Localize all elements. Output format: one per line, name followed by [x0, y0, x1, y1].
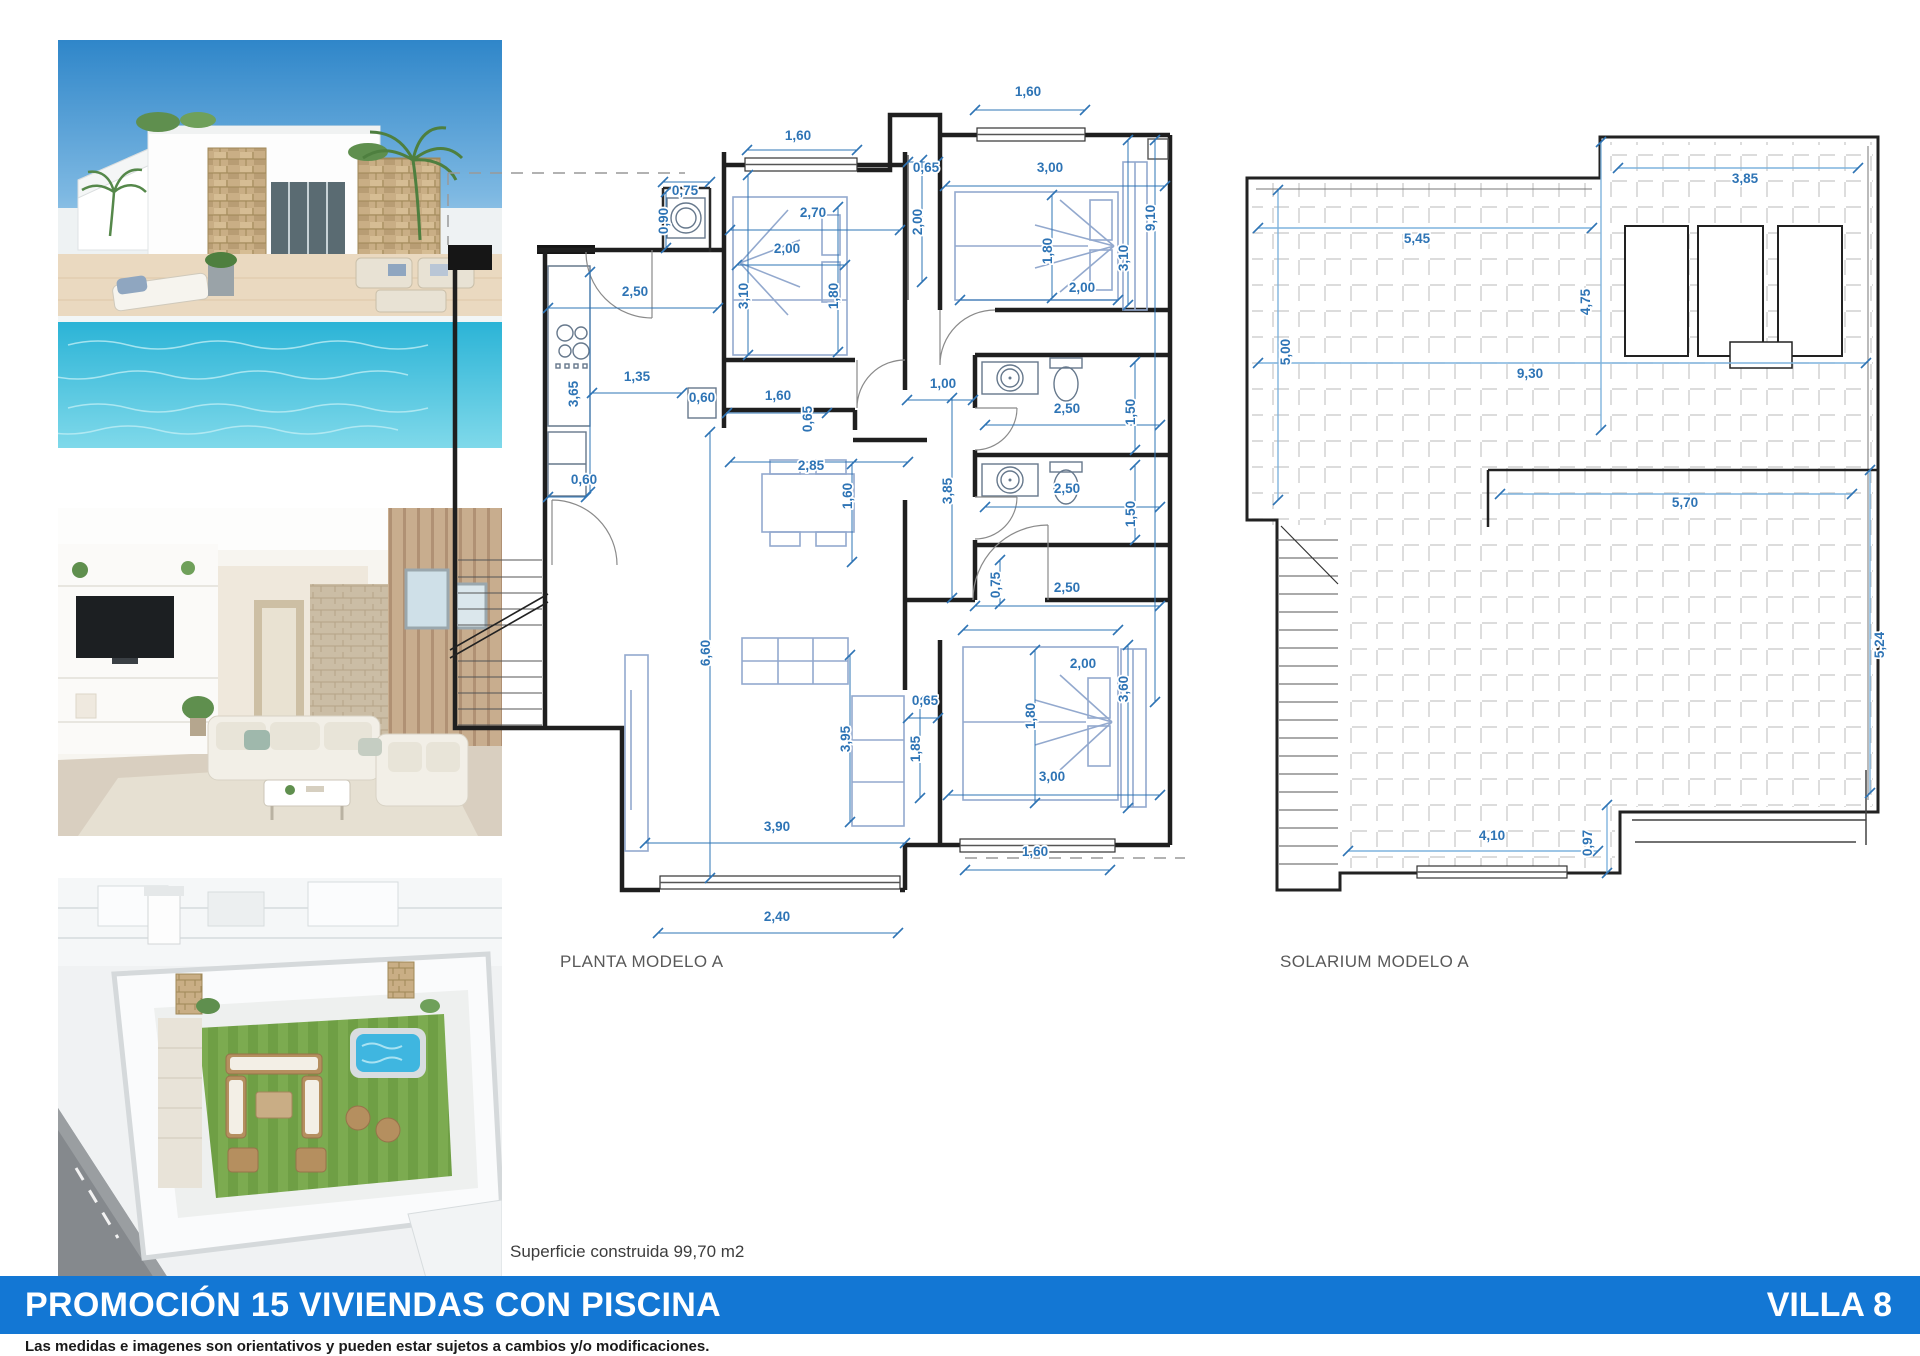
stairs	[450, 560, 548, 725]
svg-text:1,60: 1,60	[840, 483, 855, 509]
promotion-title: PROMOCIÓN 15 VIVIENDAS CON PISCINA	[25, 1286, 721, 1325]
svg-text:0,65: 0,65	[913, 160, 940, 175]
solarium-stairs	[1277, 526, 1338, 864]
svg-text:0,65: 0,65	[912, 693, 939, 708]
svg-text:0,60: 0,60	[689, 390, 715, 405]
svg-text:3,90: 3,90	[764, 819, 790, 834]
svg-text:2,50: 2,50	[1054, 481, 1080, 496]
svg-text:2,40: 2,40	[764, 909, 790, 924]
svg-text:0,75: 0,75	[988, 571, 1003, 598]
svg-text:0,60: 0,60	[571, 472, 597, 487]
svg-text:0,90: 0,90	[656, 208, 671, 234]
svg-text:3,65: 3,65	[566, 380, 581, 407]
svg-text:5,70: 5,70	[1672, 495, 1698, 510]
svg-text:2,00: 2,00	[910, 209, 925, 235]
svg-text:1,80: 1,80	[1040, 238, 1055, 264]
title-banner: PROMOCIÓN 15 VIVIENDAS CON PISCINA VILLA…	[0, 1276, 1920, 1334]
svg-text:1,60: 1,60	[1015, 84, 1041, 99]
wall-block	[448, 245, 492, 270]
svg-text:1,60: 1,60	[765, 388, 791, 403]
svg-text:2,50: 2,50	[1054, 580, 1080, 595]
svg-text:2,50: 2,50	[622, 284, 648, 299]
svg-text:3,00: 3,00	[1037, 160, 1063, 175]
svg-text:2,85: 2,85	[798, 458, 825, 473]
svg-text:2,00: 2,00	[774, 241, 800, 256]
svg-text:6,60: 6,60	[698, 640, 713, 666]
disclaimer-text: Las medidas e imagenes son orientativos …	[25, 1338, 709, 1355]
svg-text:1,80: 1,80	[1023, 703, 1038, 729]
svg-text:3,85: 3,85	[1732, 171, 1759, 186]
solarium-plan: 5,455,009,303,854,755,705,244,100,97	[1247, 137, 1887, 890]
planta-plan-label: PLANTA MODELO A	[560, 952, 723, 972]
villa-number: VILLA 8	[1767, 1286, 1892, 1325]
solarium-plan-label: SOLARIUM MODELO A	[1280, 952, 1469, 972]
svg-text:5,24: 5,24	[1872, 631, 1887, 658]
kitchen-fixtures	[548, 188, 716, 496]
svg-text:3,95: 3,95	[838, 725, 853, 752]
svg-text:1,50: 1,50	[1123, 501, 1138, 527]
svg-text:0,65: 0,65	[800, 405, 815, 432]
svg-text:3,10: 3,10	[1116, 245, 1131, 271]
svg-text:4,75: 4,75	[1578, 288, 1593, 315]
svg-text:0,97: 0,97	[1580, 830, 1595, 856]
svg-text:9,30: 9,30	[1517, 366, 1543, 381]
svg-text:1,50: 1,50	[1123, 399, 1138, 425]
svg-text:3,60: 3,60	[1116, 676, 1131, 702]
built-area-note: Superficie construida 99,70 m2	[510, 1242, 744, 1262]
svg-text:2,00: 2,00	[1070, 656, 1096, 671]
svg-text:4,10: 4,10	[1479, 828, 1505, 843]
svg-text:3,10: 3,10	[736, 283, 751, 309]
svg-text:1,00: 1,00	[930, 376, 956, 391]
svg-text:1,85: 1,85	[908, 735, 923, 762]
svg-text:5,45: 5,45	[1404, 231, 1431, 246]
svg-text:2,00: 2,00	[1069, 280, 1095, 295]
svg-text:1,80: 1,80	[826, 283, 841, 309]
svg-text:3,85: 3,85	[940, 477, 955, 504]
svg-text:3,00: 3,00	[1039, 769, 1065, 784]
svg-text:2,50: 2,50	[1054, 401, 1080, 416]
svg-text:9,10: 9,10	[1143, 205, 1158, 231]
planta-dimension-lines	[543, 105, 1170, 938]
svg-text:1,60: 1,60	[1022, 844, 1048, 859]
svg-text:0,75: 0,75	[672, 183, 699, 198]
brochure-page: 1,601,600,750,902,700,652,003,002,003,10…	[0, 0, 1920, 1356]
svg-text:1,35: 1,35	[624, 369, 651, 384]
floor-plans-canvas: 1,601,600,750,902,700,652,003,002,003,10…	[0, 0, 1920, 1356]
svg-text:1,60: 1,60	[785, 128, 811, 143]
solarium-roof-openings	[1625, 226, 1842, 368]
planta-plan: 1,601,600,750,902,700,652,003,002,003,10…	[448, 84, 1185, 938]
svg-text:2,70: 2,70	[800, 205, 826, 220]
svg-text:5,00: 5,00	[1278, 339, 1293, 365]
